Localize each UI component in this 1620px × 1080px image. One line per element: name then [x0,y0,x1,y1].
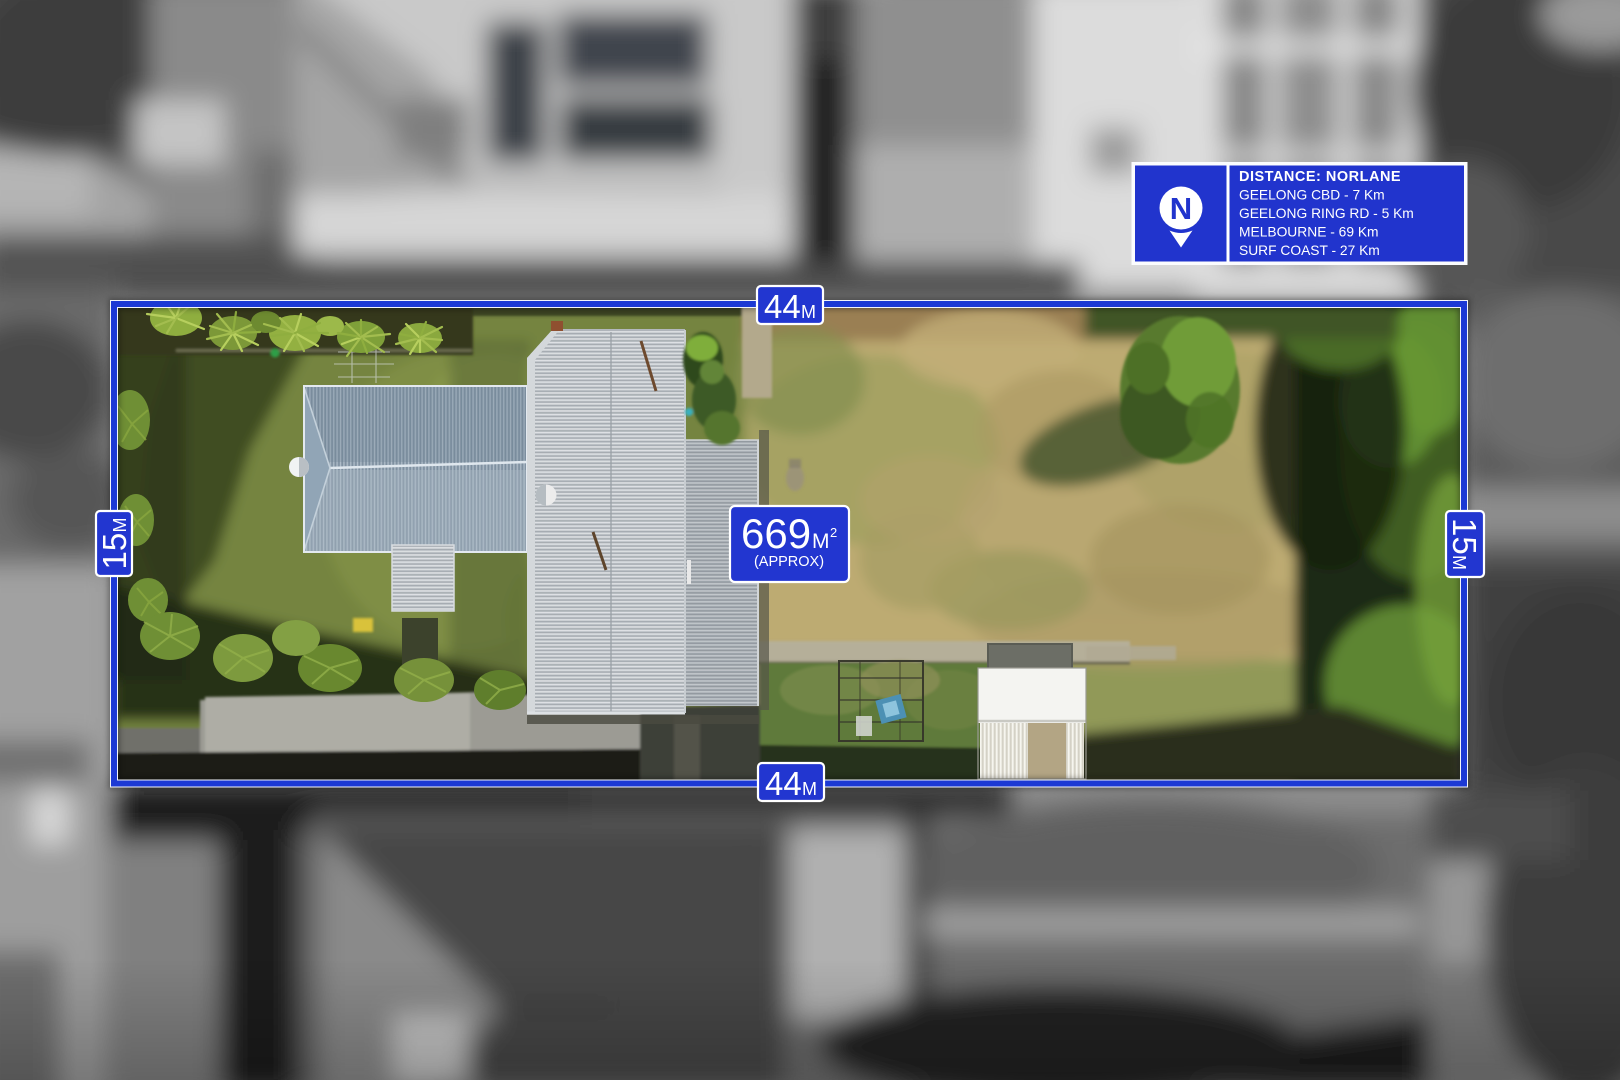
svg-text:DISTANCE: NORLANE: DISTANCE: NORLANE [1239,169,1401,185]
svg-text:M: M [801,302,816,322]
svg-text:15: 15 [1446,518,1483,555]
svg-text:M: M [802,779,817,799]
svg-text:MELBOURNE - 69 Km: MELBOURNE - 69 Km [1239,225,1379,240]
svg-text:669: 669 [741,510,811,557]
svg-text:SURF COAST - 27 Km: SURF COAST - 27 Km [1239,243,1380,258]
svg-text:2: 2 [830,525,837,540]
svg-text:44: 44 [765,765,802,802]
svg-text:M: M [812,530,830,553]
svg-text:44: 44 [764,288,801,325]
svg-text:GEELONG RING RD - 5 Km: GEELONG RING RD - 5 Km [1239,206,1414,221]
svg-text:M: M [110,518,130,533]
svg-text:GEELONG CBD - 7 Km: GEELONG CBD - 7 Km [1239,188,1385,203]
svg-text:(APPROX): (APPROX) [754,554,824,570]
svg-text:15: 15 [96,533,133,570]
svg-text:N: N [1170,191,1192,226]
svg-text:M: M [1449,555,1469,570]
